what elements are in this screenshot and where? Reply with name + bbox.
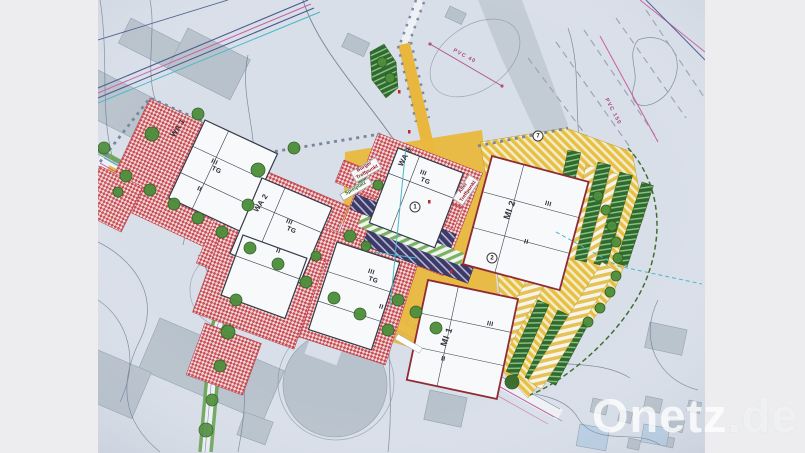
photo-vignette — [98, 0, 705, 453]
reference-marker-2: 2 — [487, 253, 498, 264]
plan-drawing — [98, 0, 705, 453]
reference-marker-7: 7 — [533, 131, 544, 142]
reference-marker-1: 1 — [410, 202, 421, 213]
watermark-tld: .de — [728, 389, 799, 442]
screenshot-stage: WA 1 WA 2 WA 3 MI 2 MI 1 III TG II III T… — [0, 0, 805, 453]
plan-photo: WA 1 WA 2 WA 3 MI 2 MI 1 III TG II III T… — [98, 0, 705, 453]
